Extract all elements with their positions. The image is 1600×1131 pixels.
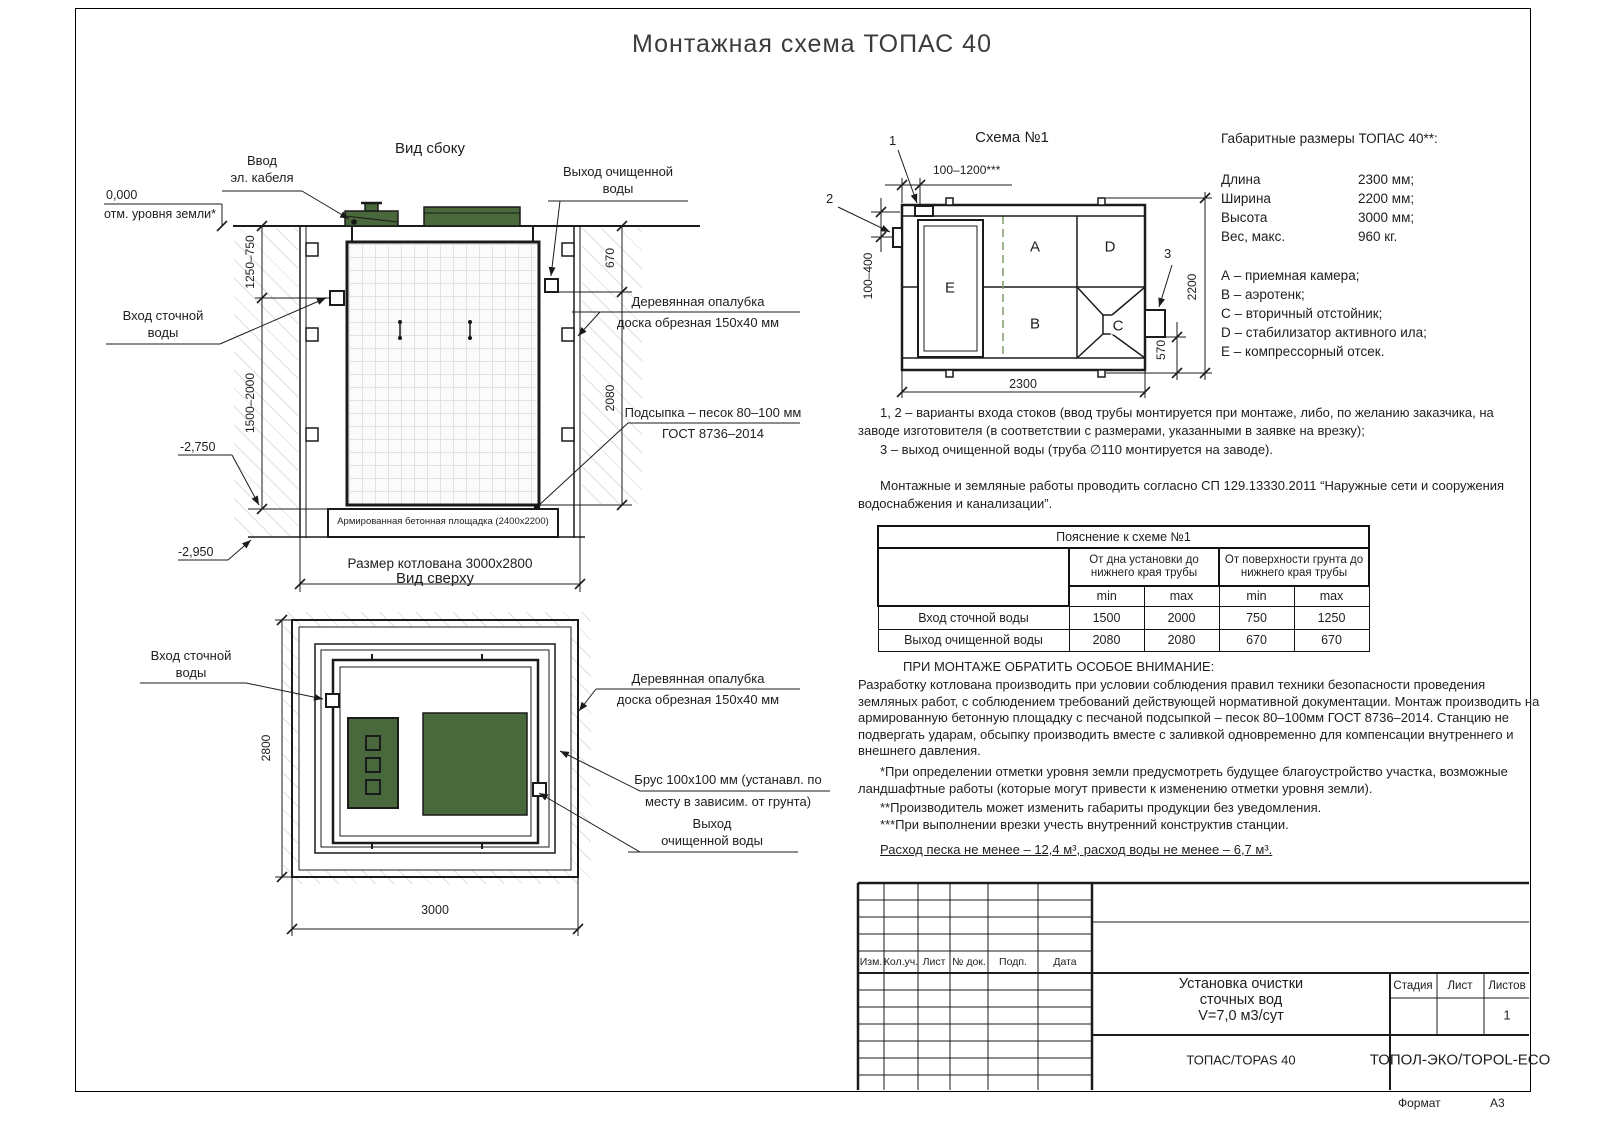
dim-1250-750: 1250–750 [243,235,257,288]
tb-col-list: Лист [923,956,946,968]
table-min1: min [1069,586,1144,606]
tb-model: ТОПАС/TOPAS 40 [1186,1053,1295,1068]
spec-weight-value: 960 кг. [1358,229,1397,244]
schema-mark-3: 3 [1164,246,1171,261]
spec-weight-label: Вес, макс. [1221,229,1285,244]
table-corner-cell [878,548,1069,606]
sand-bed-label: Подсыпка – песок 80–100 мм [625,405,802,420]
chamber-c: C [1111,318,1126,335]
top-formwork-label: Деревянная опалубка [632,671,765,686]
schema-mark-2: 2 [826,191,833,206]
dim-2300: 2300 [1009,377,1037,392]
tb-col-podp: Подп. [999,956,1027,968]
clean-water-outlet-label-2: воды [603,181,634,196]
elevation-minus-2750: -2,750 [180,440,215,455]
legend-a: А – приемная камера; [1221,268,1359,283]
tb-col-data: Дата [1053,956,1076,968]
sheet-title: Монтажная схема ТОПАС 40 [562,30,1062,59]
tb-stage-label: Стадия [1393,980,1432,992]
cable-entry-label: Ввод [247,153,277,168]
note-inlet-variants: 1, 2 – варианты входа стоков (ввод трубы… [858,404,1534,439]
beam-label-2: месту в зависим. от грунта) [645,794,811,809]
row-outlet-c1: 2080 [1069,629,1144,651]
table-max2: max [1294,586,1369,606]
clean-water-outlet-label: Выход очищенной [563,164,673,179]
dim-100-1200: 100–1200*** [933,163,1000,178]
row-inlet-c2: 2000 [1144,606,1219,629]
dim-3000: 3000 [421,903,449,918]
schema-mark-1: 1 [889,133,896,148]
doc-title-line3: V=7,0 м3/сут [1198,1009,1284,1024]
elevation-minus-2950: -2,950 [178,545,213,560]
top-outlet-label: Выход [693,816,732,831]
concrete-pad-label: Армированная бетонная площадка (2400х220… [337,516,549,527]
dim-100-400: 100–400 [861,253,875,300]
tb-company: ТОПОЛ-ЭКО/TOPOL-ECO [1370,1052,1551,1069]
dim-570: 570 [1154,340,1168,360]
tb-sheets-label: Листов [1488,980,1525,992]
footnote-2: **Производитель может изменить габариты … [880,800,1321,815]
cable-entry-label-2: эл. кабеля [230,170,293,185]
footnote-1: *При определении отметки уровня земли пр… [858,764,1546,797]
format-label: Формат [1398,1096,1441,1111]
table-row: Выход очищенной воды 2080 2080 670 670 [878,629,1369,651]
chamber-e: E [943,280,957,297]
table-min2: min [1219,586,1294,606]
dim-2200: 2200 [1185,274,1199,301]
attention-title: ПРИ МОНТАЖЕ ОБРАТИТЬ ОСОБОЕ ВНИМАНИЕ: [903,659,1214,674]
row-inlet-c3: 750 [1219,606,1294,629]
schema-title: Схема №1 [975,130,1049,145]
tb-sheets-value: 1 [1503,1008,1510,1023]
tb-sheet-label: Лист [1448,980,1473,992]
formwork-label: Деревянная опалубка [632,294,765,309]
table-max1: max [1144,586,1219,606]
row-outlet-name: Выход очищенной воды [878,629,1069,651]
sewage-inlet-label-2: воды [148,325,179,340]
row-outlet-c4: 670 [1294,629,1369,651]
tb-col-ndok: № док. [952,956,986,968]
table-title: Пояснение к схеме №1 [878,526,1369,548]
chamber-d: D [1103,239,1118,256]
top-view-title: Вид сверху [396,571,474,586]
table-row: Вход сточной воды 1500 2000 750 1250 [878,606,1369,629]
sand-bed-label-2: ГОСТ 8736–2014 [662,426,764,441]
row-outlet-c3: 670 [1219,629,1294,651]
note-mounting: Монтажные и земляные работы проводить со… [858,477,1534,512]
doc-title-line2: сточных вод [1200,993,1282,1008]
tb-col-izm: Изм. [860,956,883,968]
chamber-a: A [1028,239,1042,256]
top-inlet-label: Вход сточной [151,648,232,663]
spec-length-value: 2300 мм; [1358,172,1414,187]
side-view-title: Вид сбоку [395,141,465,156]
dim-2080: 2080 [603,385,617,412]
specs-title: Габаритные размеры ТОПАС 40**: [1221,131,1438,146]
table-group2-header: От поверхности грунта до нижнего края тр… [1219,548,1369,586]
top-inlet-label-2: воды [176,665,207,680]
top-outlet-label-2: очищенной воды [661,833,763,848]
row-inlet-c1: 1500 [1069,606,1144,629]
dim-670: 670 [603,248,617,268]
explanation-table: Пояснение к схеме №1 От дна установки до… [877,525,1370,652]
attention-body: Разработку котлована производить при усл… [858,677,1546,760]
side-view-drawing [104,191,800,592]
spec-length-label: Длина [1221,172,1261,187]
pit-size-label: Размер котлована 3000х2800 [348,556,533,571]
legend-e: Е – компрессорный отсек. [1221,344,1384,359]
formwork-label-2: доска обрезная 150х40 мм [617,315,779,330]
doc-title-line1: Установка очистки [1179,977,1303,992]
top-formwork-label-2: доска обрезная 150х40 мм [617,692,779,707]
legend-d: D – стабилизатор активного ила; [1221,325,1427,340]
elevation-zero-label: отм. уровня земли* [104,207,216,222]
page: { "page": { "title": "Монтажная схема ТО… [0,0,1600,1131]
beam-label: Брус 100х100 мм (устанавл. по [634,772,821,787]
spec-height-label: Высота [1221,210,1267,225]
sewage-inlet-label: Вход сточной [123,308,204,323]
row-inlet-c4: 1250 [1294,606,1369,629]
tb-col-koluch: Кол.уч. [884,956,918,968]
row-outlet-c2: 2080 [1144,629,1219,651]
consumption-note: Расход песка не менее – 12,4 м³, расход … [880,842,1272,857]
elevation-zero: 0,000 [106,188,137,203]
spec-height-value: 3000 мм; [1358,210,1414,225]
legend-c: С – вторичный отстойник; [1221,306,1382,321]
dim-2800: 2800 [259,735,273,762]
legend-b: В – аэротенк; [1221,287,1305,302]
table-group1-header: От дна установки до нижнего края трубы [1069,548,1219,586]
spec-width-value: 2200 мм; [1358,191,1414,206]
chamber-b: B [1028,316,1042,333]
dim-1500-2000: 1500–2000 [243,373,257,433]
format-value: А3 [1490,1096,1505,1111]
note-outlet: 3 – выход очищенной воды (труба ∅110 мон… [858,441,1534,459]
schema-drawing [838,150,1212,398]
footnote-3: ***При выполнении врезки учесть внутренн… [880,817,1289,832]
row-inlet-name: Вход сточной воды [878,606,1069,629]
spec-width-label: Ширина [1221,191,1271,206]
